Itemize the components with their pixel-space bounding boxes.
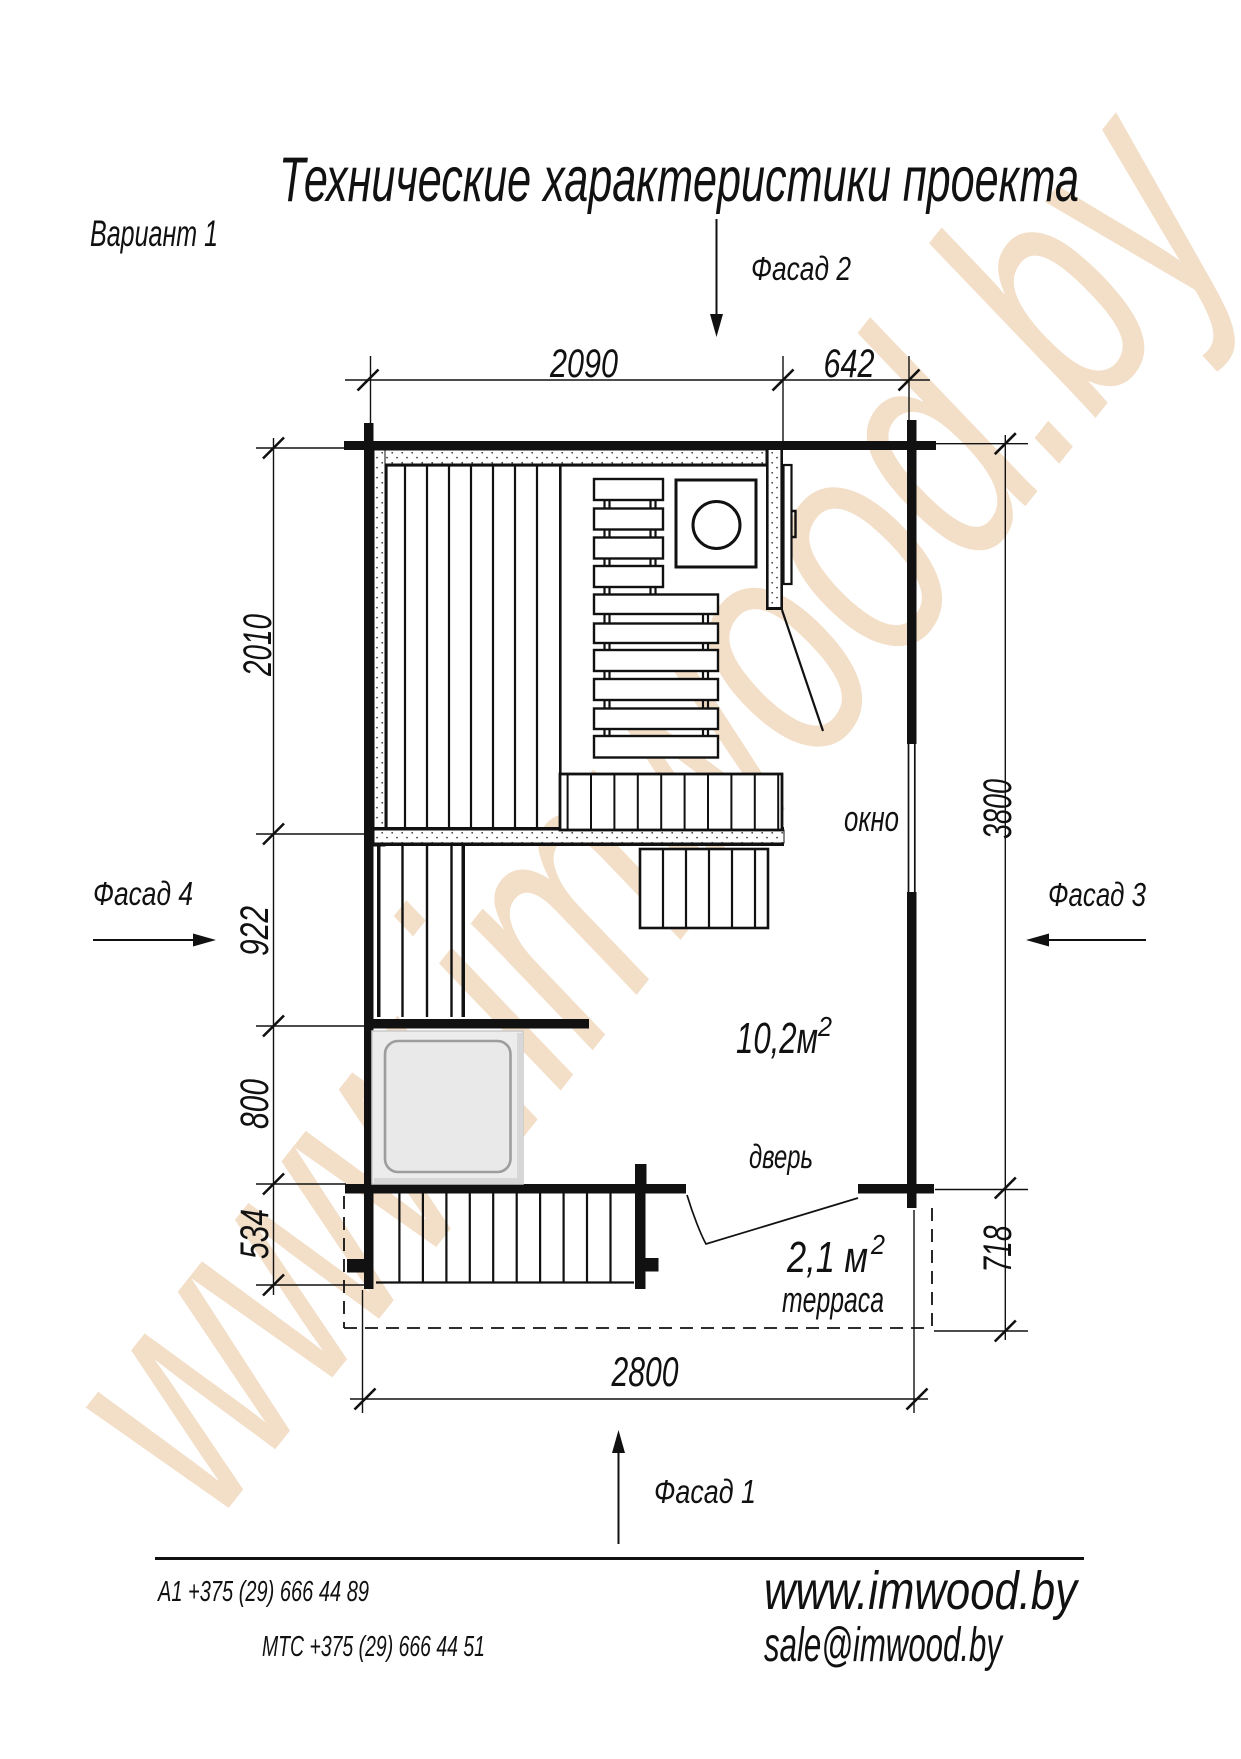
svg-text:2090: 2090 [549,342,618,386]
svg-text:534: 534 [233,1209,277,1259]
svg-text:Фасад 2: Фасад 2 [751,250,851,287]
svg-text:922: 922 [233,906,277,956]
svg-text:дверь: дверь [749,1138,813,1175]
svg-text:10,2м: 10,2м [736,1014,818,1063]
svg-text:2,1 м: 2,1 м [786,1233,868,1282]
svg-text:Технические характеристики про: Технические характеристики проекта [279,145,1079,215]
svg-text:Вариант 1: Вариант 1 [90,213,218,254]
svg-text:А1 +375 (29) 666 44 89: А1 +375 (29) 666 44 89 [157,1576,369,1608]
svg-text:2: 2 [870,1229,885,1260]
svg-text:окно: окно [844,798,899,839]
svg-text:2010: 2010 [236,614,280,677]
svg-text:Фасад 4: Фасад 4 [93,875,193,912]
svg-text:www.imwood.by: www.imwood.by [764,1561,1079,1621]
svg-text:718: 718 [976,1225,1020,1273]
svg-text:Фасад 1: Фасад 1 [654,1473,756,1510]
svg-text:800: 800 [233,1079,277,1129]
svg-text:терраса: терраса [782,1279,884,1320]
svg-text:МТС +375 (29) 666 44 51: МТС +375 (29) 666 44 51 [262,1631,485,1663]
svg-text:2: 2 [817,1011,832,1042]
svg-text:sale@imwood.by: sale@imwood.by [764,1619,1004,1672]
svg-text:2800: 2800 [611,1348,679,1395]
svg-text:3800: 3800 [976,779,1020,839]
svg-text:642: 642 [824,342,875,386]
svg-text:Фасад 3: Фасад 3 [1048,876,1147,913]
